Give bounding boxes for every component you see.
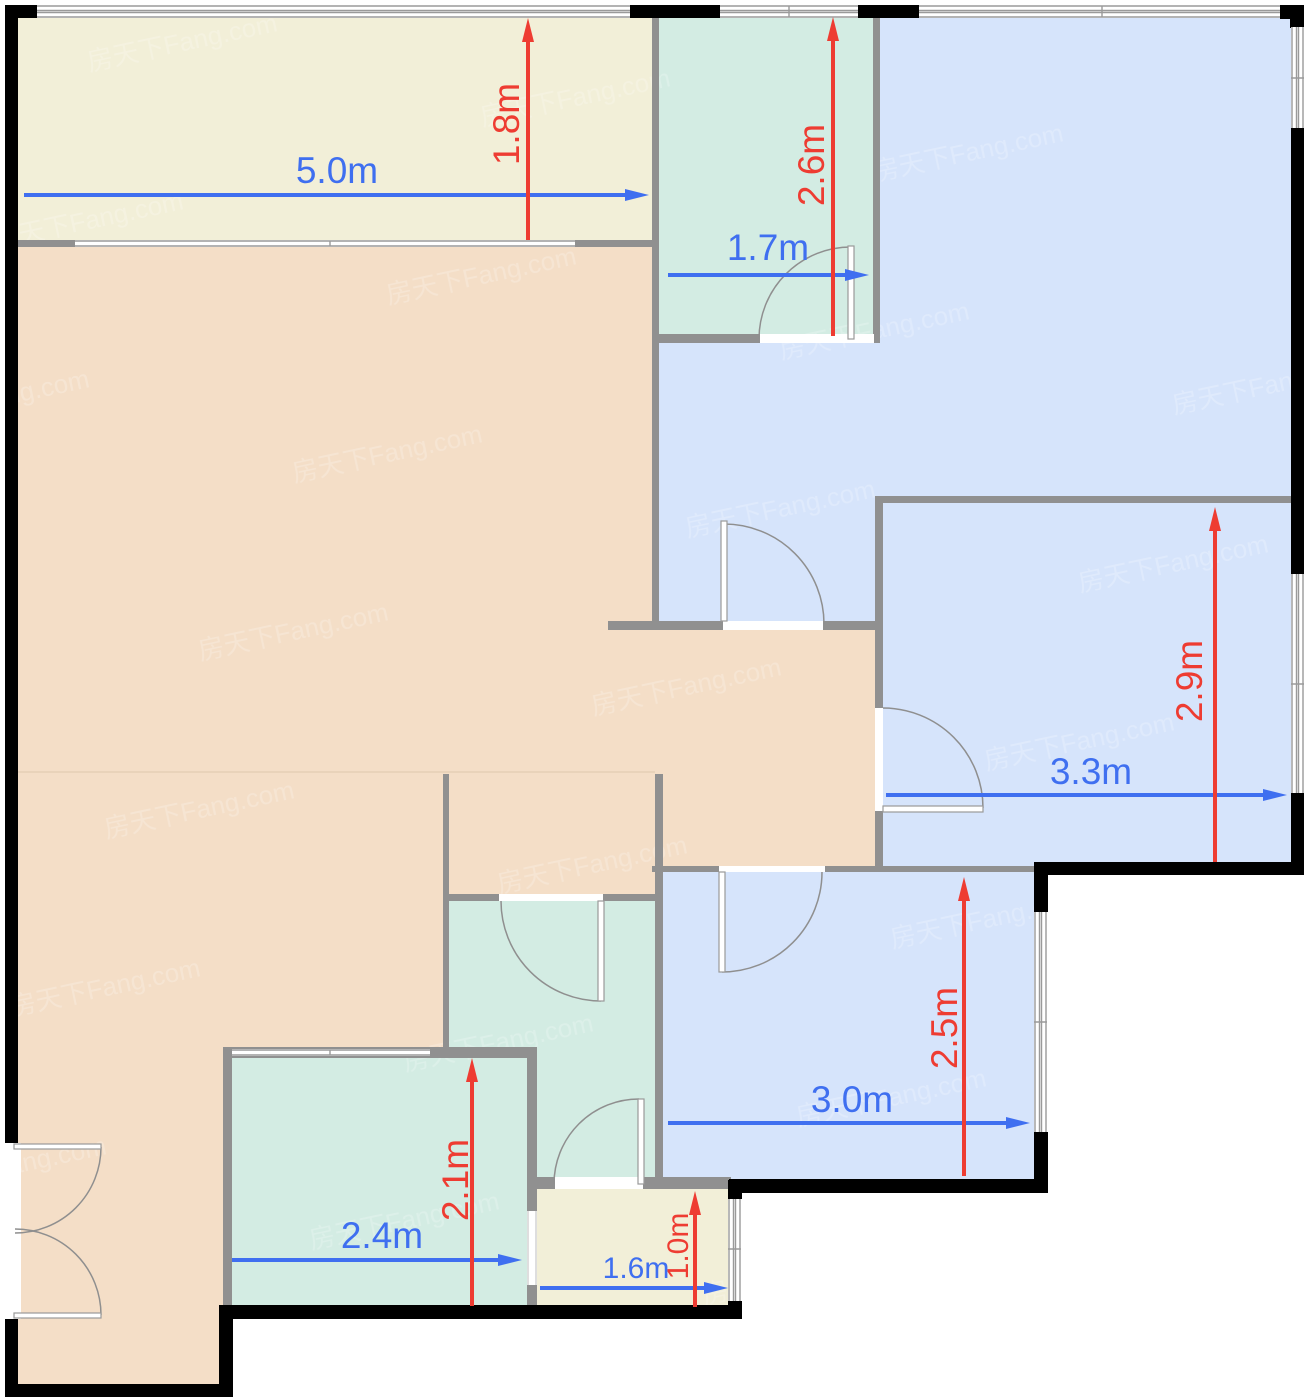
svg-text:2.9m: 2.9m (1169, 640, 1210, 722)
svg-text:1.6m: 1.6m (603, 1252, 670, 1285)
svg-text:1.0m: 1.0m (662, 1213, 695, 1280)
svg-text:2.4m: 2.4m (341, 1215, 423, 1256)
svg-text:2.6m: 2.6m (791, 124, 832, 206)
svg-text:1.8m: 1.8m (486, 83, 527, 165)
svg-text:1.7m: 1.7m (727, 227, 809, 268)
svg-text:2.5m: 2.5m (924, 987, 965, 1069)
svg-text:3.0m: 3.0m (811, 1079, 893, 1120)
svg-text:3.3m: 3.3m (1050, 751, 1132, 792)
svg-text:5.0m: 5.0m (296, 150, 378, 191)
svg-text:2.1m: 2.1m (435, 1139, 476, 1221)
